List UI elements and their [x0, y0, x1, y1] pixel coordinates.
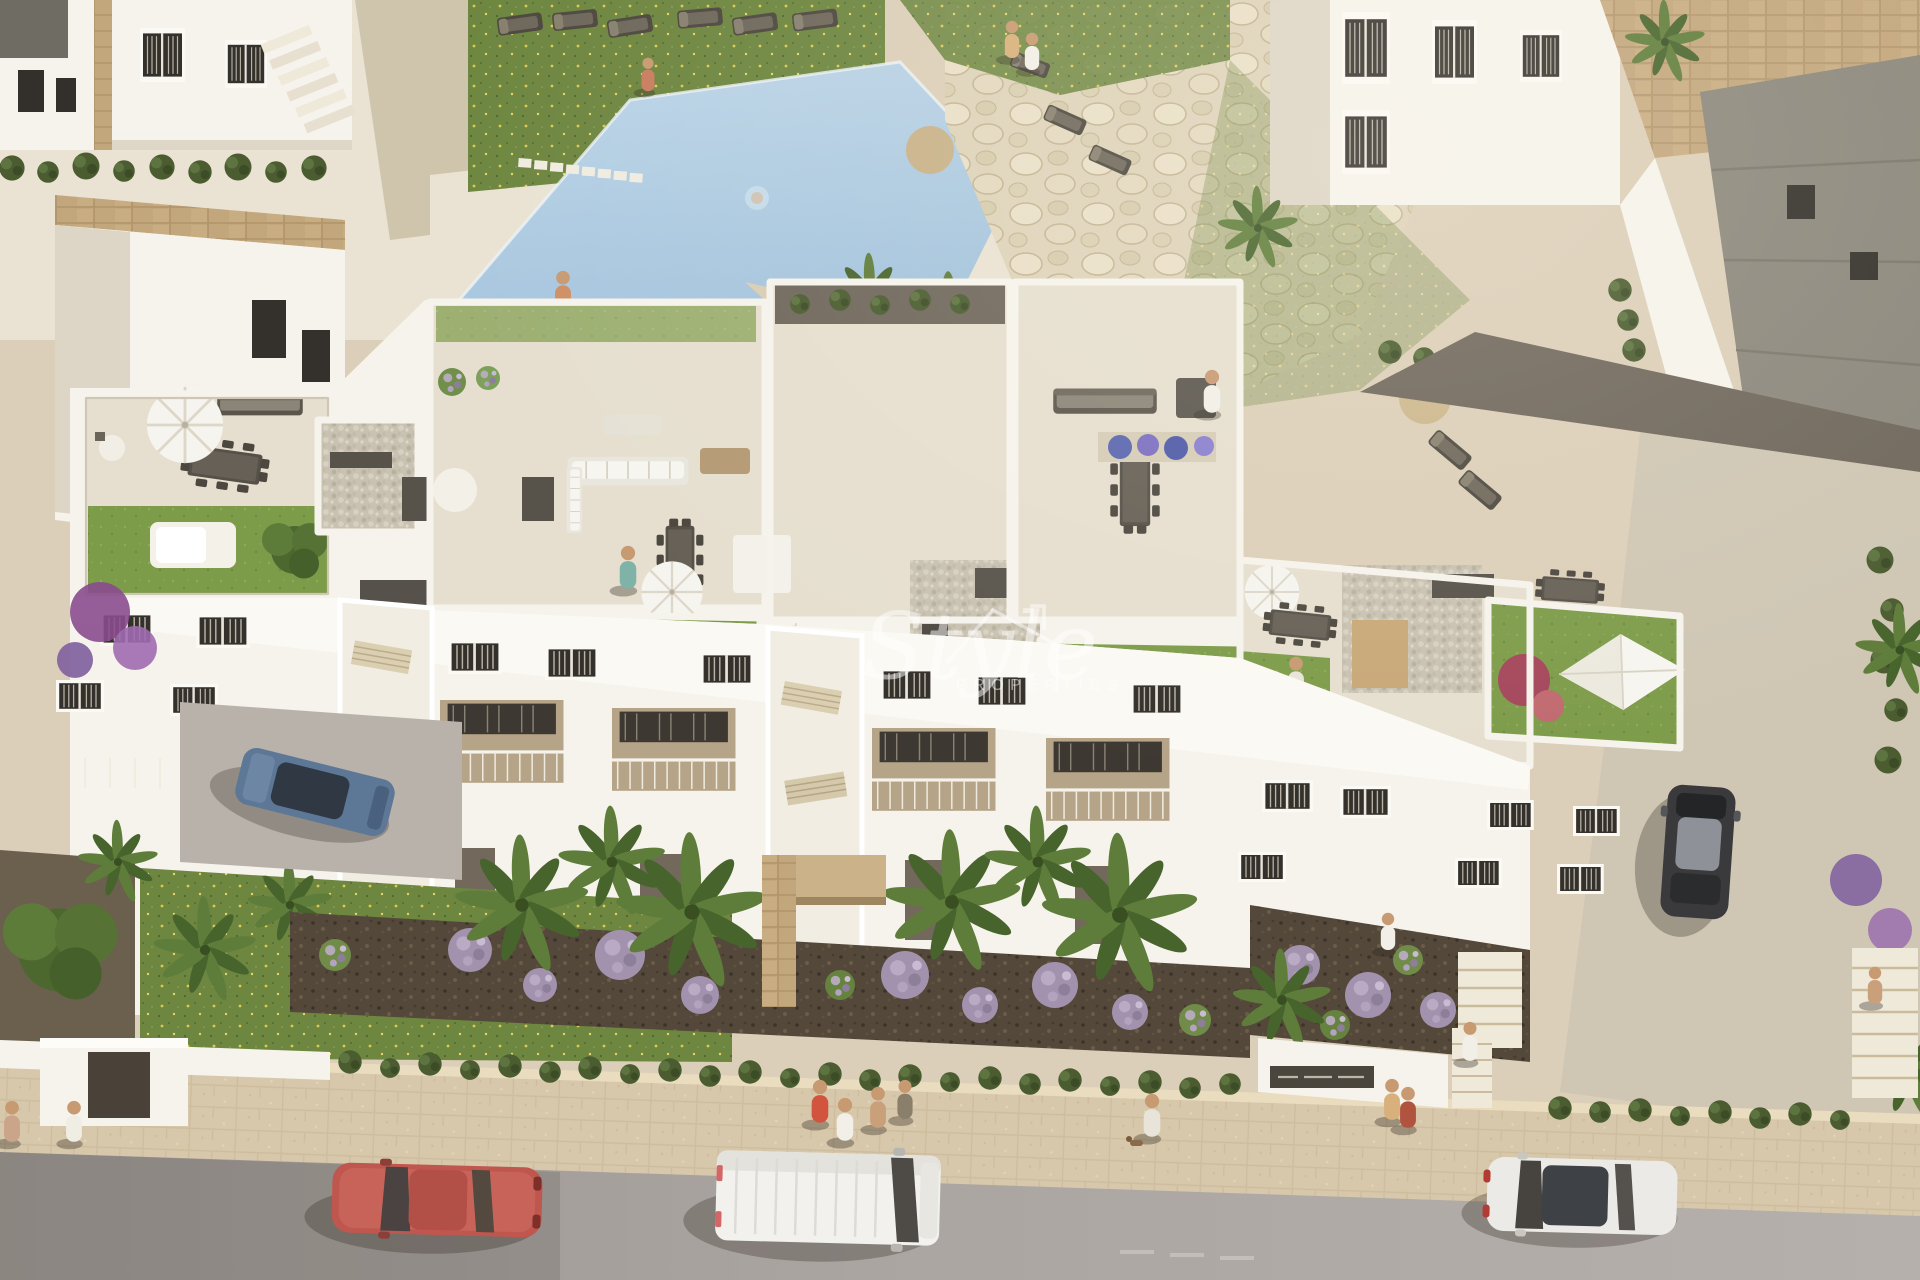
aerial-render-scene: Style PROPERTIES [0, 0, 1920, 1280]
render-canvas: Style PROPERTIES [0, 0, 1920, 1280]
watermark-caps-text: PROPERTIES [956, 677, 1124, 694]
watermark: Style PROPERTIES [862, 593, 1124, 700]
